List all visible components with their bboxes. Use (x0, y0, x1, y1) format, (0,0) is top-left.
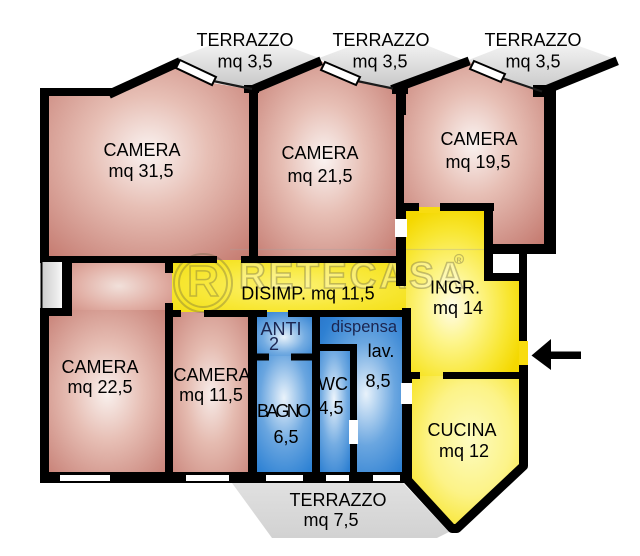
svg-text:CAMERA: CAMERA (173, 365, 250, 385)
svg-text:mq 11,5: mq 11,5 (179, 385, 243, 405)
svg-text:WC: WC (318, 374, 348, 394)
svg-text:INGR.: INGR. (430, 278, 480, 298)
svg-text:mq 3,5: mq 3,5 (217, 52, 272, 72)
svg-text:mq 7,5: mq 7,5 (303, 510, 358, 530)
svg-text:4,5: 4,5 (318, 398, 343, 418)
svg-text:8,5: 8,5 (365, 371, 390, 391)
svg-text:mq 12: mq 12 (439, 441, 489, 461)
svg-text:lav.: lav. (368, 341, 395, 361)
svg-text:TERRAZZO: TERRAZZO (333, 30, 430, 50)
svg-text:mq 14: mq 14 (433, 298, 483, 318)
svg-text:2: 2 (269, 334, 279, 354)
svg-text:CAMERA: CAMERA (103, 140, 180, 160)
svg-text:TERRAZZO: TERRAZZO (290, 490, 387, 510)
svg-text:CAMERA: CAMERA (281, 143, 358, 163)
svg-text:mq 19,5: mq 19,5 (445, 152, 510, 172)
svg-text:mq 3,5: mq 3,5 (505, 52, 560, 72)
svg-text:dispensa: dispensa (331, 318, 398, 336)
svg-text:mq 22,5: mq 22,5 (67, 377, 132, 397)
svg-text:BAGNO: BAGNO (257, 401, 311, 421)
svg-text:R: R (187, 257, 219, 306)
svg-text:CAMERA: CAMERA (440, 129, 517, 149)
svg-text:6,5: 6,5 (273, 427, 298, 447)
svg-text:mq 31,5: mq 31,5 (108, 161, 173, 181)
svg-text:CUCINA: CUCINA (427, 420, 496, 440)
svg-text:TERRAZZO: TERRAZZO (197, 30, 294, 50)
svg-text:TERRAZZO: TERRAZZO (485, 30, 582, 50)
svg-text:mq 21,5: mq 21,5 (287, 166, 352, 186)
svg-text:CAMERA: CAMERA (61, 357, 138, 377)
svg-text:R: R (456, 258, 461, 265)
svg-text:DISIMP. mq 11,5: DISIMP. mq 11,5 (241, 284, 374, 304)
svg-text:mq 3,5: mq 3,5 (352, 52, 407, 72)
svg-text:ANTI: ANTI (260, 319, 301, 339)
